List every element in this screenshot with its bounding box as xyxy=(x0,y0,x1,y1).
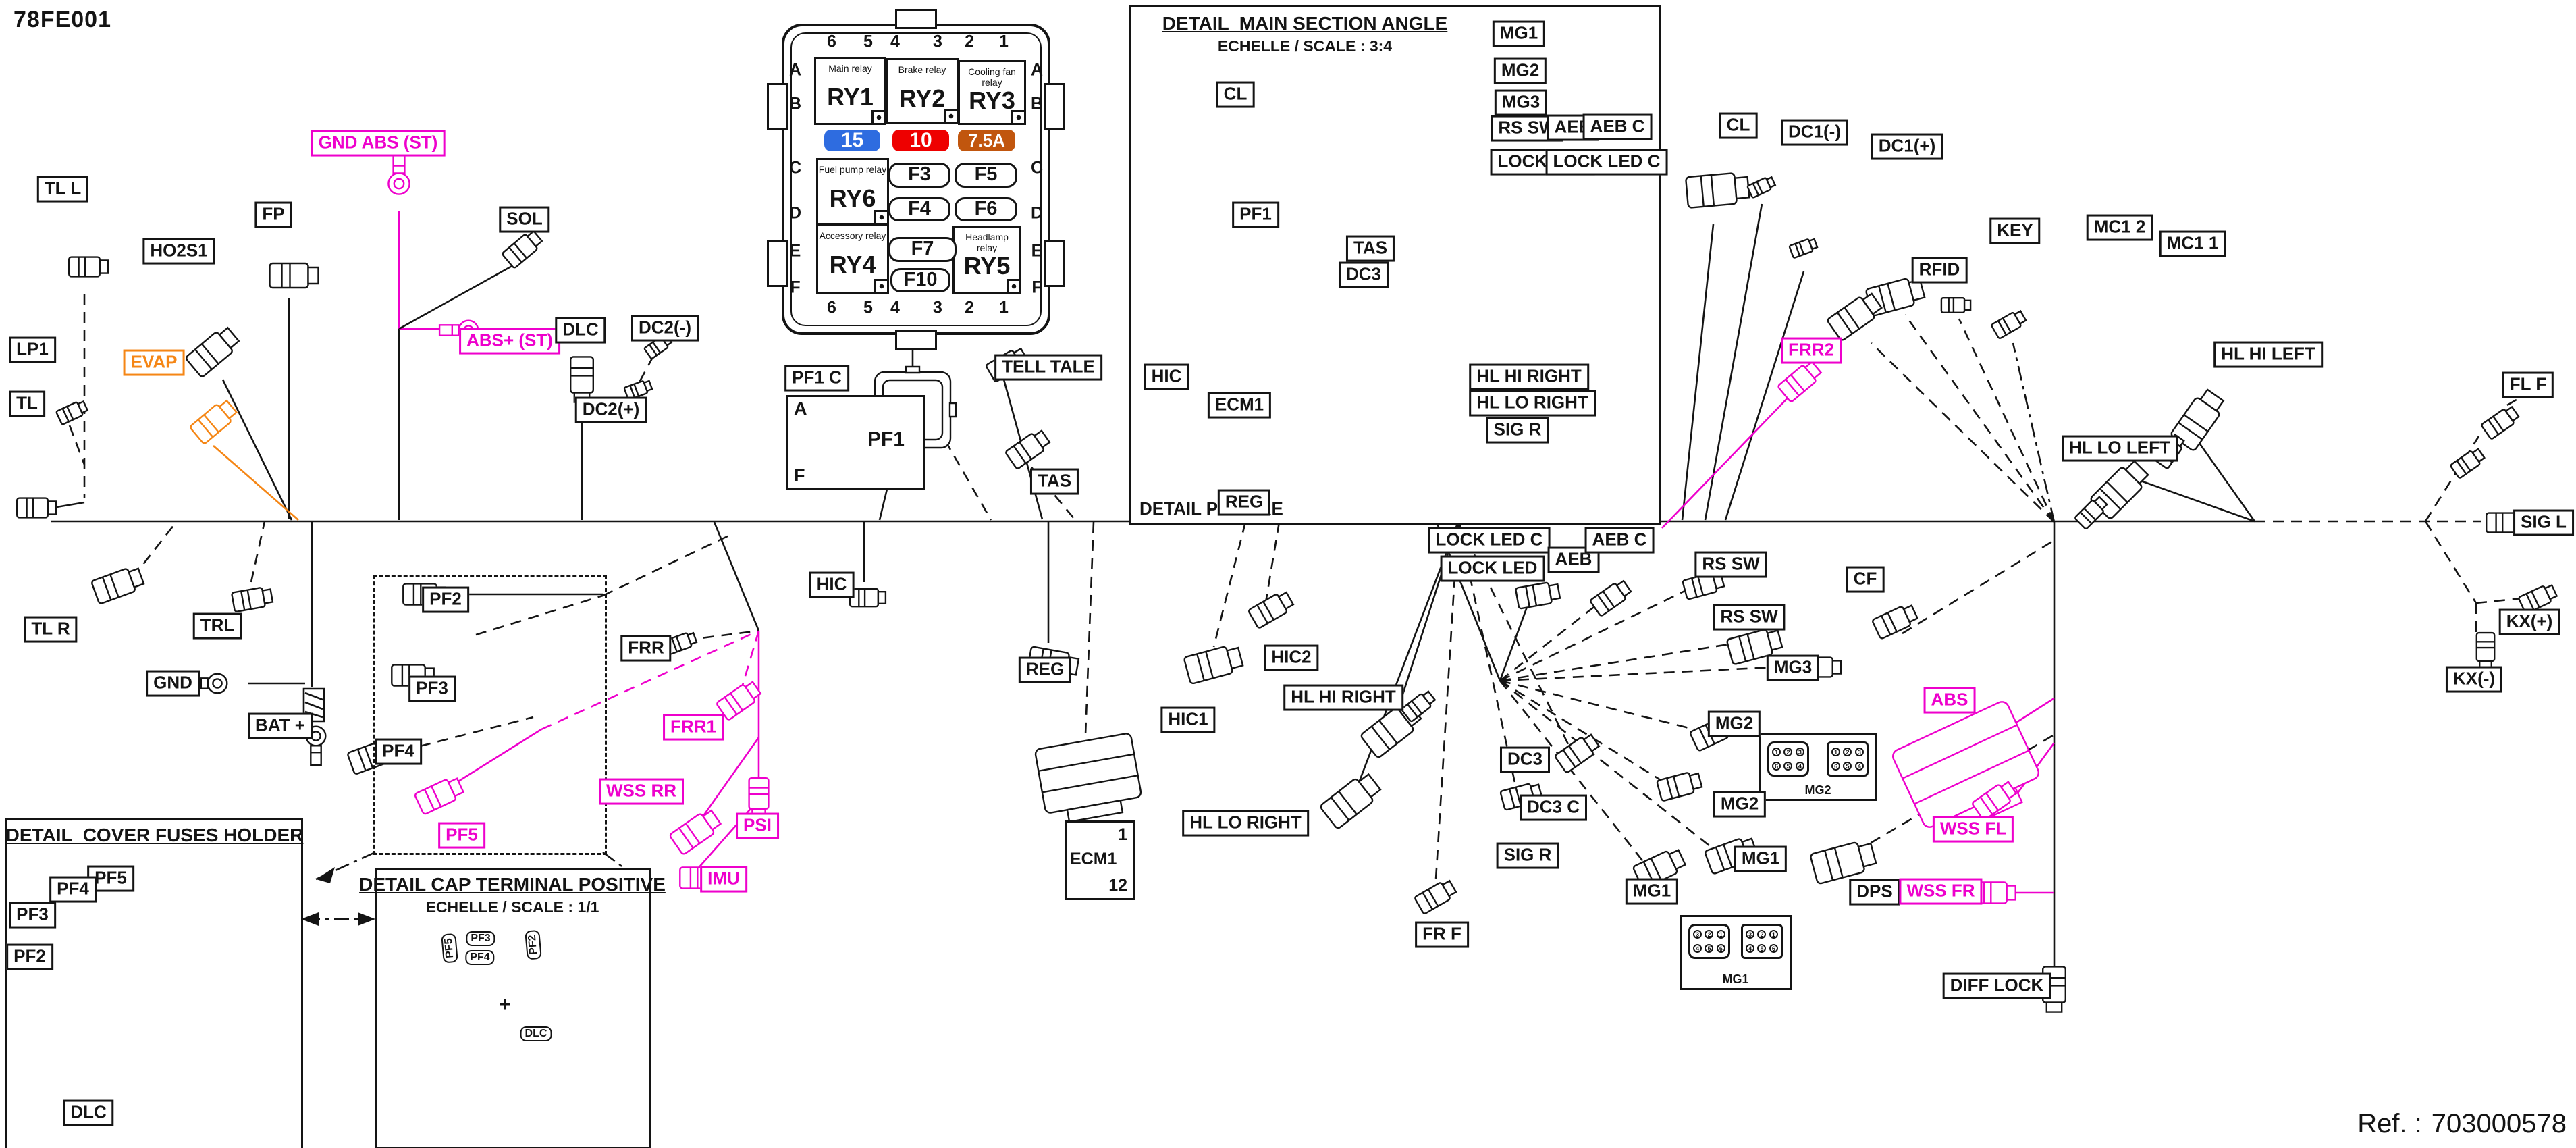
wire-segment xyxy=(70,425,84,465)
label-rs-sw: RS SW xyxy=(1713,604,1785,631)
wire-segment xyxy=(2425,436,2479,521)
detail-cover-fuses-box: DETAIL COVER FUSES HOLDER xyxy=(5,818,303,1148)
fuse-f5: F5 xyxy=(955,163,1017,188)
fusebox-mark-F: F xyxy=(1031,278,1042,298)
wire-segment xyxy=(639,356,653,384)
label-kx(-): KX(-) xyxy=(2446,667,2502,693)
label-fr-f: FR F xyxy=(1415,922,1469,948)
hl-lo-right-connector xyxy=(1320,771,1384,829)
pf-group-dashed-box xyxy=(373,575,607,855)
label-gnd: GND xyxy=(146,671,200,697)
wire-segment xyxy=(316,867,335,883)
tl-connector xyxy=(17,498,56,518)
pin-5: 5 xyxy=(1757,944,1766,953)
wire-segment xyxy=(2425,521,2476,603)
wire-segment xyxy=(1214,522,1245,647)
pin-5: 5 xyxy=(1843,762,1852,771)
pin-3: 3 xyxy=(1693,930,1702,939)
label-pf2: PF2 xyxy=(422,587,469,613)
dps-connector xyxy=(1810,839,1877,885)
relay-ry6: Fuel pump relayRY6 xyxy=(816,158,889,225)
label-sig-r: SIG R xyxy=(1497,843,1559,869)
label-hl-lo-right: HL LO RIGHT xyxy=(1469,390,1596,417)
kx-neg-connector xyxy=(2477,633,2494,669)
fusebox-mark-5: 5 xyxy=(863,32,873,52)
ecm1-pin-last: 12 xyxy=(1108,876,1127,895)
fuse-box-lug xyxy=(767,83,788,130)
label-fl-f: FL F xyxy=(2502,372,2554,398)
fuse-box-tab-top xyxy=(895,9,937,29)
label-frr2: FRR2 xyxy=(1781,338,1842,364)
pf1-pin-label: PF1 xyxy=(867,428,905,451)
wire-segment xyxy=(251,521,265,582)
dc1-pos-connector xyxy=(1789,237,1818,258)
fusebox-mark-B: B xyxy=(1031,95,1043,114)
label-hl-hi-right: HL HI RIGHT xyxy=(1469,364,1589,390)
fuse-box-lug xyxy=(1044,83,1065,130)
label-ho2s1: HO2S1 xyxy=(142,238,215,265)
label-reg: REG xyxy=(1218,490,1270,516)
wire-segment xyxy=(1682,224,1713,520)
label-dc3: DC3 xyxy=(1500,747,1550,773)
relay-ry2: Brake relayRY2 xyxy=(886,58,959,124)
label-frr1: FRR1 xyxy=(663,714,724,741)
label-bat-+: BAT + xyxy=(248,713,313,739)
fuse-rating-10a: 10 xyxy=(892,130,949,151)
pin-3: 3 xyxy=(1746,930,1754,939)
fusebox-mark-3: 3 xyxy=(933,32,942,52)
pin-6: 6 xyxy=(1717,944,1725,953)
embossed-dlc: DLC xyxy=(520,1026,552,1041)
embossed-pf3: PF3 xyxy=(466,931,495,946)
detail-main-section-title: DETAIL MAIN SECTION ANGLE xyxy=(1162,13,1448,34)
label-hl-hi-left: HL HI LEFT xyxy=(2213,342,2323,368)
pin-3: 3 xyxy=(1855,748,1864,756)
pf1-pin-bottom: F xyxy=(794,465,805,486)
pin-1: 1 xyxy=(1831,748,1840,756)
label-mg3: MG3 xyxy=(1767,655,1819,681)
relay-ry5: Headlamp relayRY5 xyxy=(952,226,1021,294)
ho2s1-connector xyxy=(185,324,242,377)
wire-segment xyxy=(53,502,84,508)
label-lock-led-c: LOCK LED C xyxy=(1546,149,1668,176)
ecm1-pin-box: ECM1 1 12 xyxy=(1065,820,1135,900)
label-abs: ABS xyxy=(1924,687,1976,714)
mg1-face-a: 321456 xyxy=(1688,924,1730,959)
label-rs-sw: RS SW xyxy=(1694,552,1767,578)
label-lock-led-c: LOCK LED C xyxy=(1428,527,1551,554)
label-mc1-2: MC1 2 xyxy=(2087,215,2153,241)
fuse-rating-7-5a: 7.5A xyxy=(958,130,1015,151)
wire-segment xyxy=(2133,478,2255,521)
tl-l-connector xyxy=(69,257,108,277)
wss-rr-connector xyxy=(669,807,723,855)
mg2-connector-2 xyxy=(1657,770,1702,801)
fusebox-mark-E: E xyxy=(790,242,801,261)
pin-2: 2 xyxy=(1783,748,1792,756)
fusebox-mark-6: 6 xyxy=(827,298,836,318)
label-mg1: MG1 xyxy=(1493,21,1545,47)
label-reg: REG xyxy=(1019,657,1071,683)
pin-5: 5 xyxy=(1705,944,1713,953)
label-mc1-1: MC1 1 xyxy=(2159,231,2226,257)
label-sol: SOL xyxy=(499,207,549,233)
wire-segment xyxy=(714,522,759,631)
embossed-+: + xyxy=(499,993,511,1016)
fusebox-mark-E: E xyxy=(1031,242,1043,261)
fuse-box-lug xyxy=(767,240,788,287)
label-abs+-(st): ABS+ (ST) xyxy=(459,328,560,355)
wire-segment xyxy=(1871,343,2054,522)
label-wss-rr: WSS RR xyxy=(599,779,684,805)
label-rfid: RFID xyxy=(1912,257,1968,284)
relay-ry3: Cooling fan relayRY3 xyxy=(958,60,1026,125)
label-mg2: MG2 xyxy=(1708,711,1761,737)
fusebox-mark-5: 5 xyxy=(863,298,873,318)
label-tl-r: TL R xyxy=(24,617,77,643)
embossed-pf2: PF2 xyxy=(525,929,542,960)
evap-connector xyxy=(190,398,239,444)
fuse-box-tab-bottom xyxy=(895,330,937,350)
wire-segment xyxy=(1705,204,1762,520)
dlc-connector xyxy=(570,357,593,402)
label-hl-lo-left: HL LO LEFT xyxy=(2062,436,2178,462)
label-hic2: HIC2 xyxy=(1264,645,1318,671)
fusebox-mark-B: B xyxy=(789,95,801,114)
label-tas: TAS xyxy=(1346,236,1395,262)
label-fp: FP xyxy=(254,202,292,228)
wire-segment xyxy=(1085,522,1094,735)
sol-connector xyxy=(502,229,544,269)
ecm1-pin-first: 1 xyxy=(1118,825,1127,845)
label-frr: FRR xyxy=(620,635,671,662)
pin-2: 2 xyxy=(1843,748,1852,756)
diagram-canvas: 78FE001 DETAIL MAIN SECTION ANGLE ECHELL… xyxy=(0,0,2576,1148)
fuse-f7: F7 xyxy=(888,237,957,262)
label-kx(+): KX(+) xyxy=(2499,609,2560,635)
label-sig-l: SIG L xyxy=(2513,510,2574,536)
fusebox-mark-6: 6 xyxy=(827,32,836,52)
dc1-neg-connector xyxy=(1747,175,1776,198)
wire-segment xyxy=(223,380,292,520)
label-dc1(-): DC1(-) xyxy=(1781,120,1848,146)
label-hl-hi-right: HL HI RIGHT xyxy=(1283,685,1403,711)
pin-2: 2 xyxy=(1757,930,1766,939)
ecm1-connector xyxy=(1035,733,1144,825)
wire-segment xyxy=(945,440,991,520)
label-tell-tale: TELL TALE xyxy=(994,355,1102,381)
detail-main-section-box: DETAIL MAIN SECTION ANGLE ECHELLE / SCAL… xyxy=(1129,5,1661,525)
pin-6: 6 xyxy=(1769,944,1778,953)
ref-label: Ref. : xyxy=(2357,1109,2422,1139)
fusebox-mark-F: F xyxy=(790,278,800,298)
label-diff-lock: DIFF LOCK xyxy=(1943,973,2051,999)
fuse-rating-15a: 15 xyxy=(824,130,880,151)
pf1-pin-box: A F PF1 xyxy=(786,395,925,490)
mc1-2-connector xyxy=(1941,298,1970,313)
tl-r-connector xyxy=(91,565,145,604)
wire-segment xyxy=(1902,540,2054,633)
mg1-inset-caption: MG1 xyxy=(1682,972,1790,987)
label-wss-fl: WSS FL xyxy=(1933,816,2014,843)
fusebox-mark-D: D xyxy=(789,204,801,224)
fuse-f4: F4 xyxy=(888,197,950,221)
lock-led-connector xyxy=(1515,581,1561,609)
label-dc2(+): DC2(+) xyxy=(575,397,647,423)
label-psi: PSI xyxy=(736,813,779,839)
fuse-f6: F6 xyxy=(955,197,1017,221)
label-pf4: PF4 xyxy=(375,739,422,765)
fusebox-mark-1: 1 xyxy=(999,32,1009,52)
pin-4: 4 xyxy=(1796,762,1804,771)
pin-6: 6 xyxy=(1772,762,1781,771)
fusebox-mark-3: 3 xyxy=(933,298,942,318)
label-tas: TAS xyxy=(1030,469,1079,495)
pin-3: 3 xyxy=(1796,748,1804,756)
fusebox-mark-2: 2 xyxy=(965,32,974,52)
label-pf4: PF4 xyxy=(49,877,97,903)
label-hic: HIC xyxy=(809,572,855,598)
fuse-f3: F3 xyxy=(888,163,950,188)
mg1-pinout-inset: 321456 321456 MG1 xyxy=(1680,915,1792,990)
label-dlc: DLC xyxy=(63,1100,113,1126)
fusebox-mark-4: 4 xyxy=(890,32,900,52)
label-pf2: PF2 xyxy=(6,944,53,970)
label-mg1: MG1 xyxy=(1626,879,1678,905)
aeb-connector xyxy=(1590,578,1633,617)
mc1-1-connector xyxy=(1991,309,2028,339)
wire-segment xyxy=(301,912,319,926)
label-trl: TRL xyxy=(193,613,242,640)
mg1-face-b: 321456 xyxy=(1741,924,1783,959)
mg2-face-a: 123654 xyxy=(1767,741,1809,777)
pin-4: 4 xyxy=(1693,944,1702,953)
label-aeb-c: AEB C xyxy=(1585,527,1655,554)
label-dc2(-): DC2(-) xyxy=(631,315,699,342)
fusebox-mark-1: 1 xyxy=(999,298,1009,318)
label-pf1-c: PF1 C xyxy=(784,365,849,392)
label-mg1: MG1 xyxy=(1734,846,1787,872)
wire-segment xyxy=(2013,343,2054,522)
fusebox-mark-D: D xyxy=(1031,204,1043,224)
wire-segment xyxy=(213,446,298,520)
pin-4: 4 xyxy=(1855,762,1864,771)
mg2-pinout-inset: 123654 123654 MG2 xyxy=(1759,733,1877,801)
fusebox-mark-C: C xyxy=(1031,159,1043,178)
label-mg2: MG2 xyxy=(1713,791,1766,818)
cf-connector xyxy=(1872,602,1919,640)
label-pf3: PF3 xyxy=(9,902,56,929)
pin-4: 4 xyxy=(1746,944,1754,953)
label-dc3: DC3 xyxy=(1339,262,1389,288)
fusebox-mark-C: C xyxy=(789,159,801,178)
label-gnd-abs-(st): GND ABS (ST) xyxy=(311,130,446,157)
label-tl-l: TL L xyxy=(37,176,88,203)
label-cf: CF xyxy=(1846,567,1885,593)
pin-2: 2 xyxy=(1705,930,1713,939)
detail-main-section-scale: ECHELLE / SCALE : 3:4 xyxy=(1218,37,1392,55)
pin-1: 1 xyxy=(1772,748,1781,756)
wire-segment xyxy=(1959,319,2054,522)
fuse-relay-box: Main relayRY1 Brake relayRY2 Cooling fan… xyxy=(782,24,1050,335)
mg2-face-b: 123654 xyxy=(1827,741,1869,777)
tas-connector xyxy=(1005,428,1052,469)
detail-cap-terminal-box: DETAIL CAP TERMINAL POSITIVE ECHELLE / S… xyxy=(375,868,651,1148)
detail-cover-fuses-title: DETAIL COVER FUSES HOLDER xyxy=(6,825,304,846)
hic1-connector xyxy=(1184,644,1244,685)
label-pf1: PF1 xyxy=(1232,202,1279,228)
pin-1: 1 xyxy=(1769,930,1778,939)
label-dlc: DLC xyxy=(555,317,606,344)
label-sig-r: SIG R xyxy=(1486,417,1549,444)
detail-cap-terminal-scale: ECHELLE / SCALE : 1/1 xyxy=(426,898,599,916)
ref-number: Ref. :703000578 xyxy=(2348,1109,2567,1139)
ecm1-label: ECM1 xyxy=(1070,850,1117,869)
cl-connector xyxy=(1686,172,1750,207)
hic2-connector xyxy=(1248,590,1295,629)
label-evap: EVAP xyxy=(124,350,185,376)
label-lp1: LP1 xyxy=(9,337,56,363)
fl-f-connector xyxy=(2481,405,2520,440)
fl-f-sleeve xyxy=(2450,447,2486,479)
wire-segment xyxy=(2193,434,2255,521)
relay-ry4: Accessory relayRY4 xyxy=(816,224,889,294)
fp-connector xyxy=(270,263,319,288)
label-lock-led: LOCK LED xyxy=(1441,556,1545,582)
fusebox-mark-4: 4 xyxy=(890,298,900,318)
wire-segment xyxy=(603,535,730,596)
label-cl: CL xyxy=(1719,113,1758,139)
fuse-box-lug xyxy=(1044,240,1065,287)
label-dc1(+): DC1(+) xyxy=(1871,134,1943,160)
label-hic: HIC xyxy=(1144,364,1189,390)
wire-segment xyxy=(399,265,514,329)
label-wss-fr: WSS FR xyxy=(1899,879,1982,905)
label-mg2: MG2 xyxy=(1494,58,1547,84)
psi-connector xyxy=(749,778,769,817)
dc3-connector xyxy=(1555,732,1601,773)
fr-f-connector xyxy=(1414,878,1457,914)
gnd-abs-ring xyxy=(388,152,409,194)
pf1-pin-top: A xyxy=(794,398,807,419)
pin-1: 1 xyxy=(1717,930,1725,939)
label-pf3: PF3 xyxy=(408,676,456,702)
wire-segment xyxy=(1265,522,1279,606)
pin-5: 5 xyxy=(1783,762,1792,771)
fusebox-mark-A: A xyxy=(789,61,801,80)
wire-segment xyxy=(1500,681,1700,731)
pin-6: 6 xyxy=(1831,762,1840,771)
label-ecm1: ECM1 xyxy=(1208,392,1271,419)
wire-segment xyxy=(1905,315,2054,522)
ref-value: 703000578 xyxy=(2432,1109,2567,1139)
detail-cap-terminal-title: DETAIL CAP TERMINAL POSITIVE xyxy=(359,874,666,895)
fusebox-mark-2: 2 xyxy=(965,298,974,318)
label-tl: TL xyxy=(9,391,45,417)
label-imu: IMU xyxy=(700,866,747,893)
label-aeb-c: AEB C xyxy=(1583,114,1653,140)
fusebox-mark-A: A xyxy=(1031,61,1043,80)
trl-connector xyxy=(232,586,273,612)
relay-ry1: Main relayRY1 xyxy=(814,57,886,125)
wire-segment xyxy=(358,912,375,926)
label-dps: DPS xyxy=(1849,879,1900,906)
label-hic1: HIC1 xyxy=(1160,707,1215,733)
label-dc3-c: DC3 C xyxy=(1520,795,1587,821)
frr2-connector xyxy=(1777,359,1823,402)
label-cl: CL xyxy=(1216,82,1255,108)
label-key: KEY xyxy=(1989,218,2040,244)
mg2-inset-caption: MG2 xyxy=(1761,783,1875,798)
lp1-connector xyxy=(56,399,88,425)
embossed-pf5: PF5 xyxy=(441,933,458,963)
label-mg3: MG3 xyxy=(1495,90,1547,116)
embossed-pf4: PF4 xyxy=(465,950,494,965)
label-pf5: PF5 xyxy=(438,823,485,849)
hic-connector xyxy=(850,589,886,606)
label-hl-lo-right: HL LO RIGHT xyxy=(1182,810,1309,837)
fuse-f10: F10 xyxy=(890,268,950,292)
wire-segment xyxy=(2476,598,2522,603)
